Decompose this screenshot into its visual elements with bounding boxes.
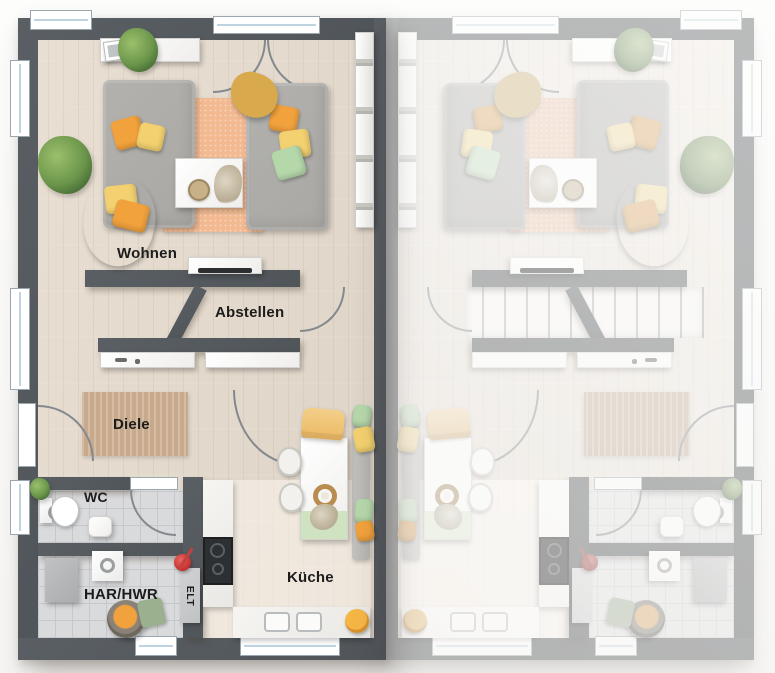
tv-lowboard [510,257,584,274]
room-label-har-hwr: HAR/HWR [84,586,158,603]
pillow [355,520,376,542]
dining-chair [277,447,302,476]
plant-sideboard [614,28,654,72]
window-bottom-utility [595,636,637,656]
storage-door-arc [427,287,472,332]
sink-basin [296,612,322,632]
wc-sink [660,516,684,537]
cooktop [539,537,569,585]
room-label-wc: WC [84,489,108,505]
window-wc [10,480,30,535]
window-top-living [30,10,92,30]
tv [198,268,252,273]
dining-chair [468,483,493,512]
pillow [352,425,376,453]
dried-plant [530,165,558,205]
plant-sideboard [118,28,158,72]
window-wc [742,480,762,535]
plant-wc [30,478,50,500]
dining-chair [470,447,495,476]
shelf-party-wall [355,32,374,228]
window-bottom-kitchen [240,636,340,656]
wc-sink [88,516,112,537]
window-top-living [680,10,742,30]
heat-pump [45,558,78,602]
entrance-door [736,403,754,467]
pillow [136,122,167,153]
hall-sideboard [577,352,672,368]
coffee-table [175,158,243,208]
washing-machine [92,551,123,581]
wc-door [594,477,642,490]
unit-left: ELT [18,18,386,660]
window-left-living [10,60,30,137]
fruit-bowl [345,609,369,633]
dried-plant [214,165,242,205]
wall-party [386,18,398,660]
wall-party [374,18,386,660]
hall-sideboard [472,352,567,368]
toilet-cistern [720,498,732,523]
wall-storage-bottom [472,338,674,352]
electrical-panel [572,568,592,623]
table-flowers [434,504,462,530]
building: ELT [18,18,754,660]
shelf-party-wall [398,32,417,228]
coffee-table [529,158,597,208]
dining-chair [427,407,471,441]
plant-corner [38,136,92,194]
wall-understair-diagonal [166,285,207,346]
storage-door-arc [300,287,345,332]
terrace-door [213,16,320,34]
window-left-living [742,60,762,137]
room-label-kueche: Küche [287,569,334,586]
unit-right [386,18,754,660]
dining-chair [301,407,345,441]
pillow [352,404,373,428]
cooktop [203,537,233,585]
wall-storage-bottom [98,338,300,352]
dining-table [300,437,348,540]
heat-pump [694,558,727,602]
tray [188,179,210,201]
pillow [606,122,637,153]
dining-table [424,437,472,540]
window-left-hall [10,288,30,390]
dining-chair [279,483,304,512]
sink-basin [264,612,290,632]
terrace-door [452,16,559,34]
fruit-bowl [403,609,427,633]
window-bottom-utility [135,636,177,656]
hall-sideboard [100,352,195,368]
hallway-rug [584,392,690,456]
tv [520,268,574,273]
entrance-door [18,403,36,467]
floorplan: ELT [0,0,775,673]
sink-basin [450,612,476,632]
pillow [400,404,421,428]
wc-door [130,477,178,490]
washing-machine [649,551,680,581]
tray [562,179,584,201]
room-label-elt: ELT [184,585,196,606]
window-left-hall [742,288,762,390]
room-label-wohnen: Wohnen [117,245,177,262]
room-label-diele: Diele [113,416,150,433]
window-bottom-kitchen [432,636,532,656]
sink-basin [482,612,508,632]
plant-corner [680,136,734,194]
wall-wc-top [642,477,734,490]
electrical-panel: ELT [180,568,200,623]
room-label-abstellen: Abstellen [215,304,284,321]
pillow [397,520,418,542]
hall-sideboard [205,352,300,368]
tv-lowboard [188,257,262,274]
